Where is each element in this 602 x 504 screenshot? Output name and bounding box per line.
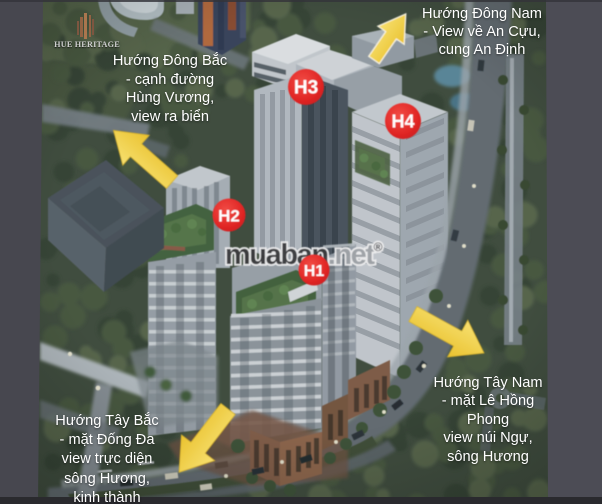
svg-text:H4: H4	[391, 112, 414, 132]
svg-text:H1: H1	[304, 263, 325, 280]
svg-text:H3: H3	[294, 78, 318, 99]
svg-text:H2: H2	[218, 207, 240, 226]
